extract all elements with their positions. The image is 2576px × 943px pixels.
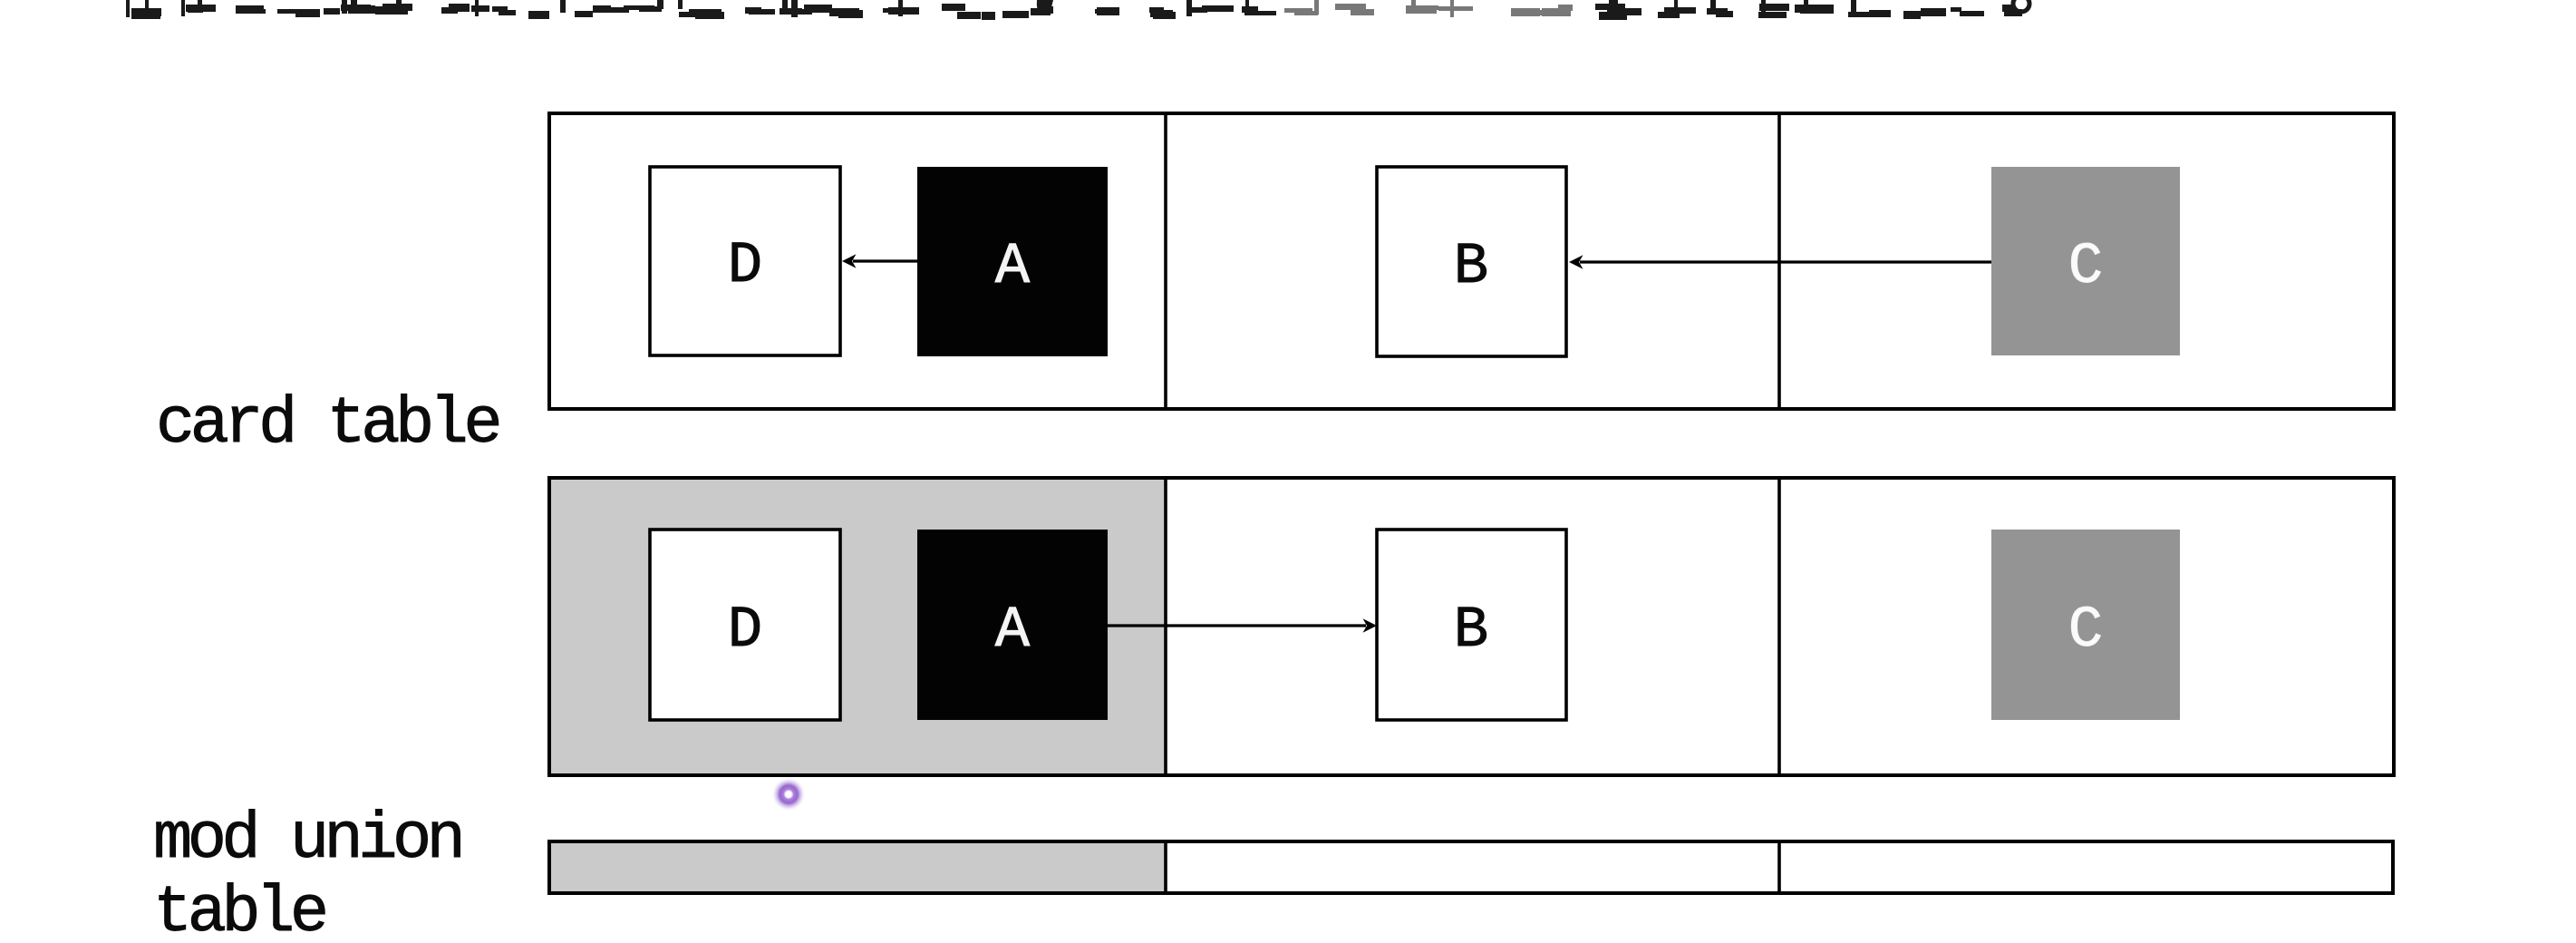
svg-text:C: C	[2068, 598, 2103, 664]
svg-text:C: C	[2068, 235, 2103, 300]
svg-text:D: D	[728, 234, 762, 299]
svg-text:mod union: mod union	[153, 802, 460, 877]
svg-text:A: A	[995, 598, 1031, 664]
svg-text:B: B	[1454, 235, 1488, 300]
svg-text:table: table	[153, 876, 325, 943]
svg-text:B: B	[1454, 598, 1488, 664]
svg-text:A: A	[995, 235, 1031, 300]
svg-text:card table: card table	[156, 387, 499, 462]
svg-text:D: D	[728, 598, 762, 664]
